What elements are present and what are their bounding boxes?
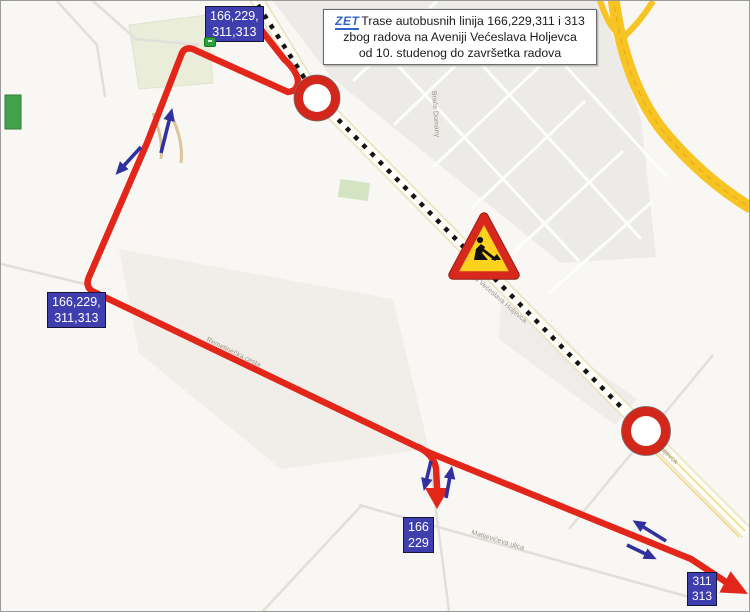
route-label-left: 166,229, 311,313 <box>47 292 106 328</box>
route-numbers: 311 <box>692 574 712 589</box>
road-closed-sign <box>622 407 671 456</box>
zet-logo: ZET <box>335 14 359 30</box>
bus-stop-icon <box>204 37 216 47</box>
title-line-1: ZETTrase autobusnih linija 166,229,311 i… <box>328 13 592 29</box>
road-closed-sign <box>294 75 340 121</box>
route-numbers: 166,229, <box>52 294 101 310</box>
route-numbers: 229 <box>408 535 429 551</box>
route-numbers: 311,313 <box>52 310 101 326</box>
route-label-bottom-right: 311 313 <box>687 572 717 606</box>
route-numbers: 313 <box>692 589 712 604</box>
route-label-bottom-center: 166 229 <box>403 517 434 553</box>
route-numbers: 166 <box>408 519 429 535</box>
title-box: ZETTrase autobusnih linija 166,229,311 i… <box>323 9 597 65</box>
map-drawing: Avenija Većeslava Holjevca Holjevca Reme… <box>1 1 749 611</box>
sports-field <box>5 95 21 129</box>
route-numbers: 166,229, <box>210 8 259 24</box>
detour-map-canvas: Avenija Većeslava Holjevca Holjevca Reme… <box>0 0 750 612</box>
title-line-3: od 10. studenog do završetka radova <box>328 45 592 61</box>
route-numbers: 311,313 <box>210 24 259 40</box>
title-line-2: zbog radova na Aveniji Većeslava Holjevc… <box>328 29 592 45</box>
title-text-1: Trase autobusnih linija 166,229,311 i 31… <box>361 14 585 28</box>
